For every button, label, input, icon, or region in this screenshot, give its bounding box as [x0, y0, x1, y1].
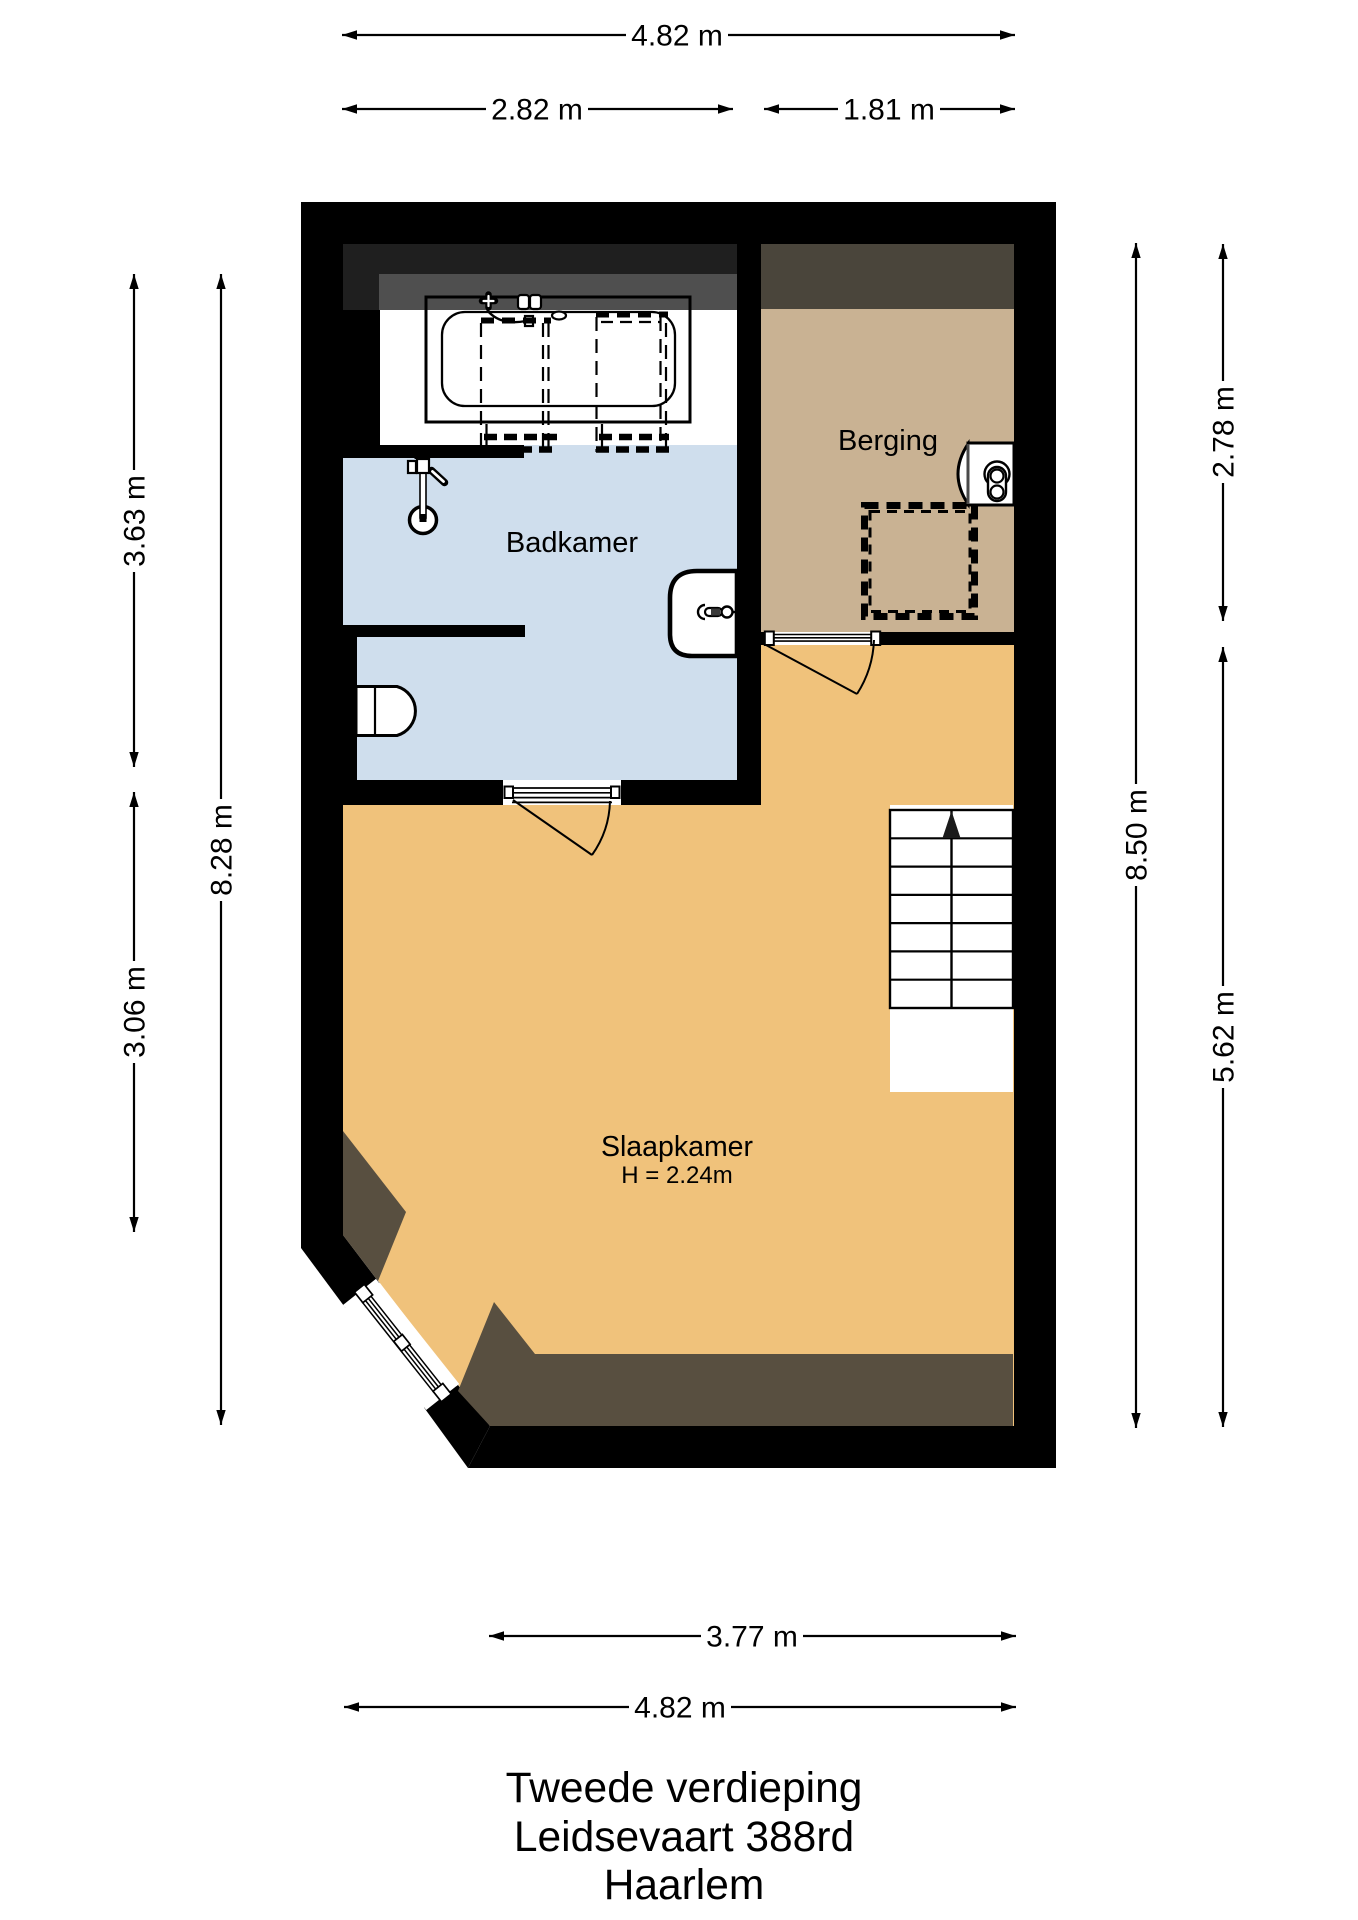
svg-text:Tweede verdieping: Tweede verdieping [506, 1765, 863, 1812]
svg-text:8.50 m: 8.50 m [1121, 789, 1154, 881]
svg-text:Slaapkamer: Slaapkamer [601, 1131, 754, 1163]
svg-text:Berging: Berging [838, 425, 938, 457]
svg-text:2.78 m: 2.78 m [1208, 386, 1241, 478]
svg-text:3.77 m: 3.77 m [706, 1621, 798, 1654]
svg-text:Haarlem: Haarlem [604, 1862, 765, 1909]
svg-text:5.62 m: 5.62 m [1208, 991, 1241, 1083]
svg-text:8.28 m: 8.28 m [206, 804, 239, 896]
svg-text:Badkamer: Badkamer [506, 527, 639, 559]
svg-text:1.81 m: 1.81 m [843, 94, 935, 127]
svg-text:4.82 m: 4.82 m [634, 1692, 726, 1725]
svg-text:4.82 m: 4.82 m [631, 20, 723, 53]
svg-text:Leidsevaart 388rd: Leidsevaart 388rd [514, 1814, 854, 1861]
svg-text:2.82 m: 2.82 m [491, 94, 583, 127]
svg-text:3.63 m: 3.63 m [119, 475, 152, 567]
svg-text:H = 2.24m: H = 2.24m [621, 1162, 732, 1189]
svg-text:3.06 m: 3.06 m [119, 966, 152, 1058]
